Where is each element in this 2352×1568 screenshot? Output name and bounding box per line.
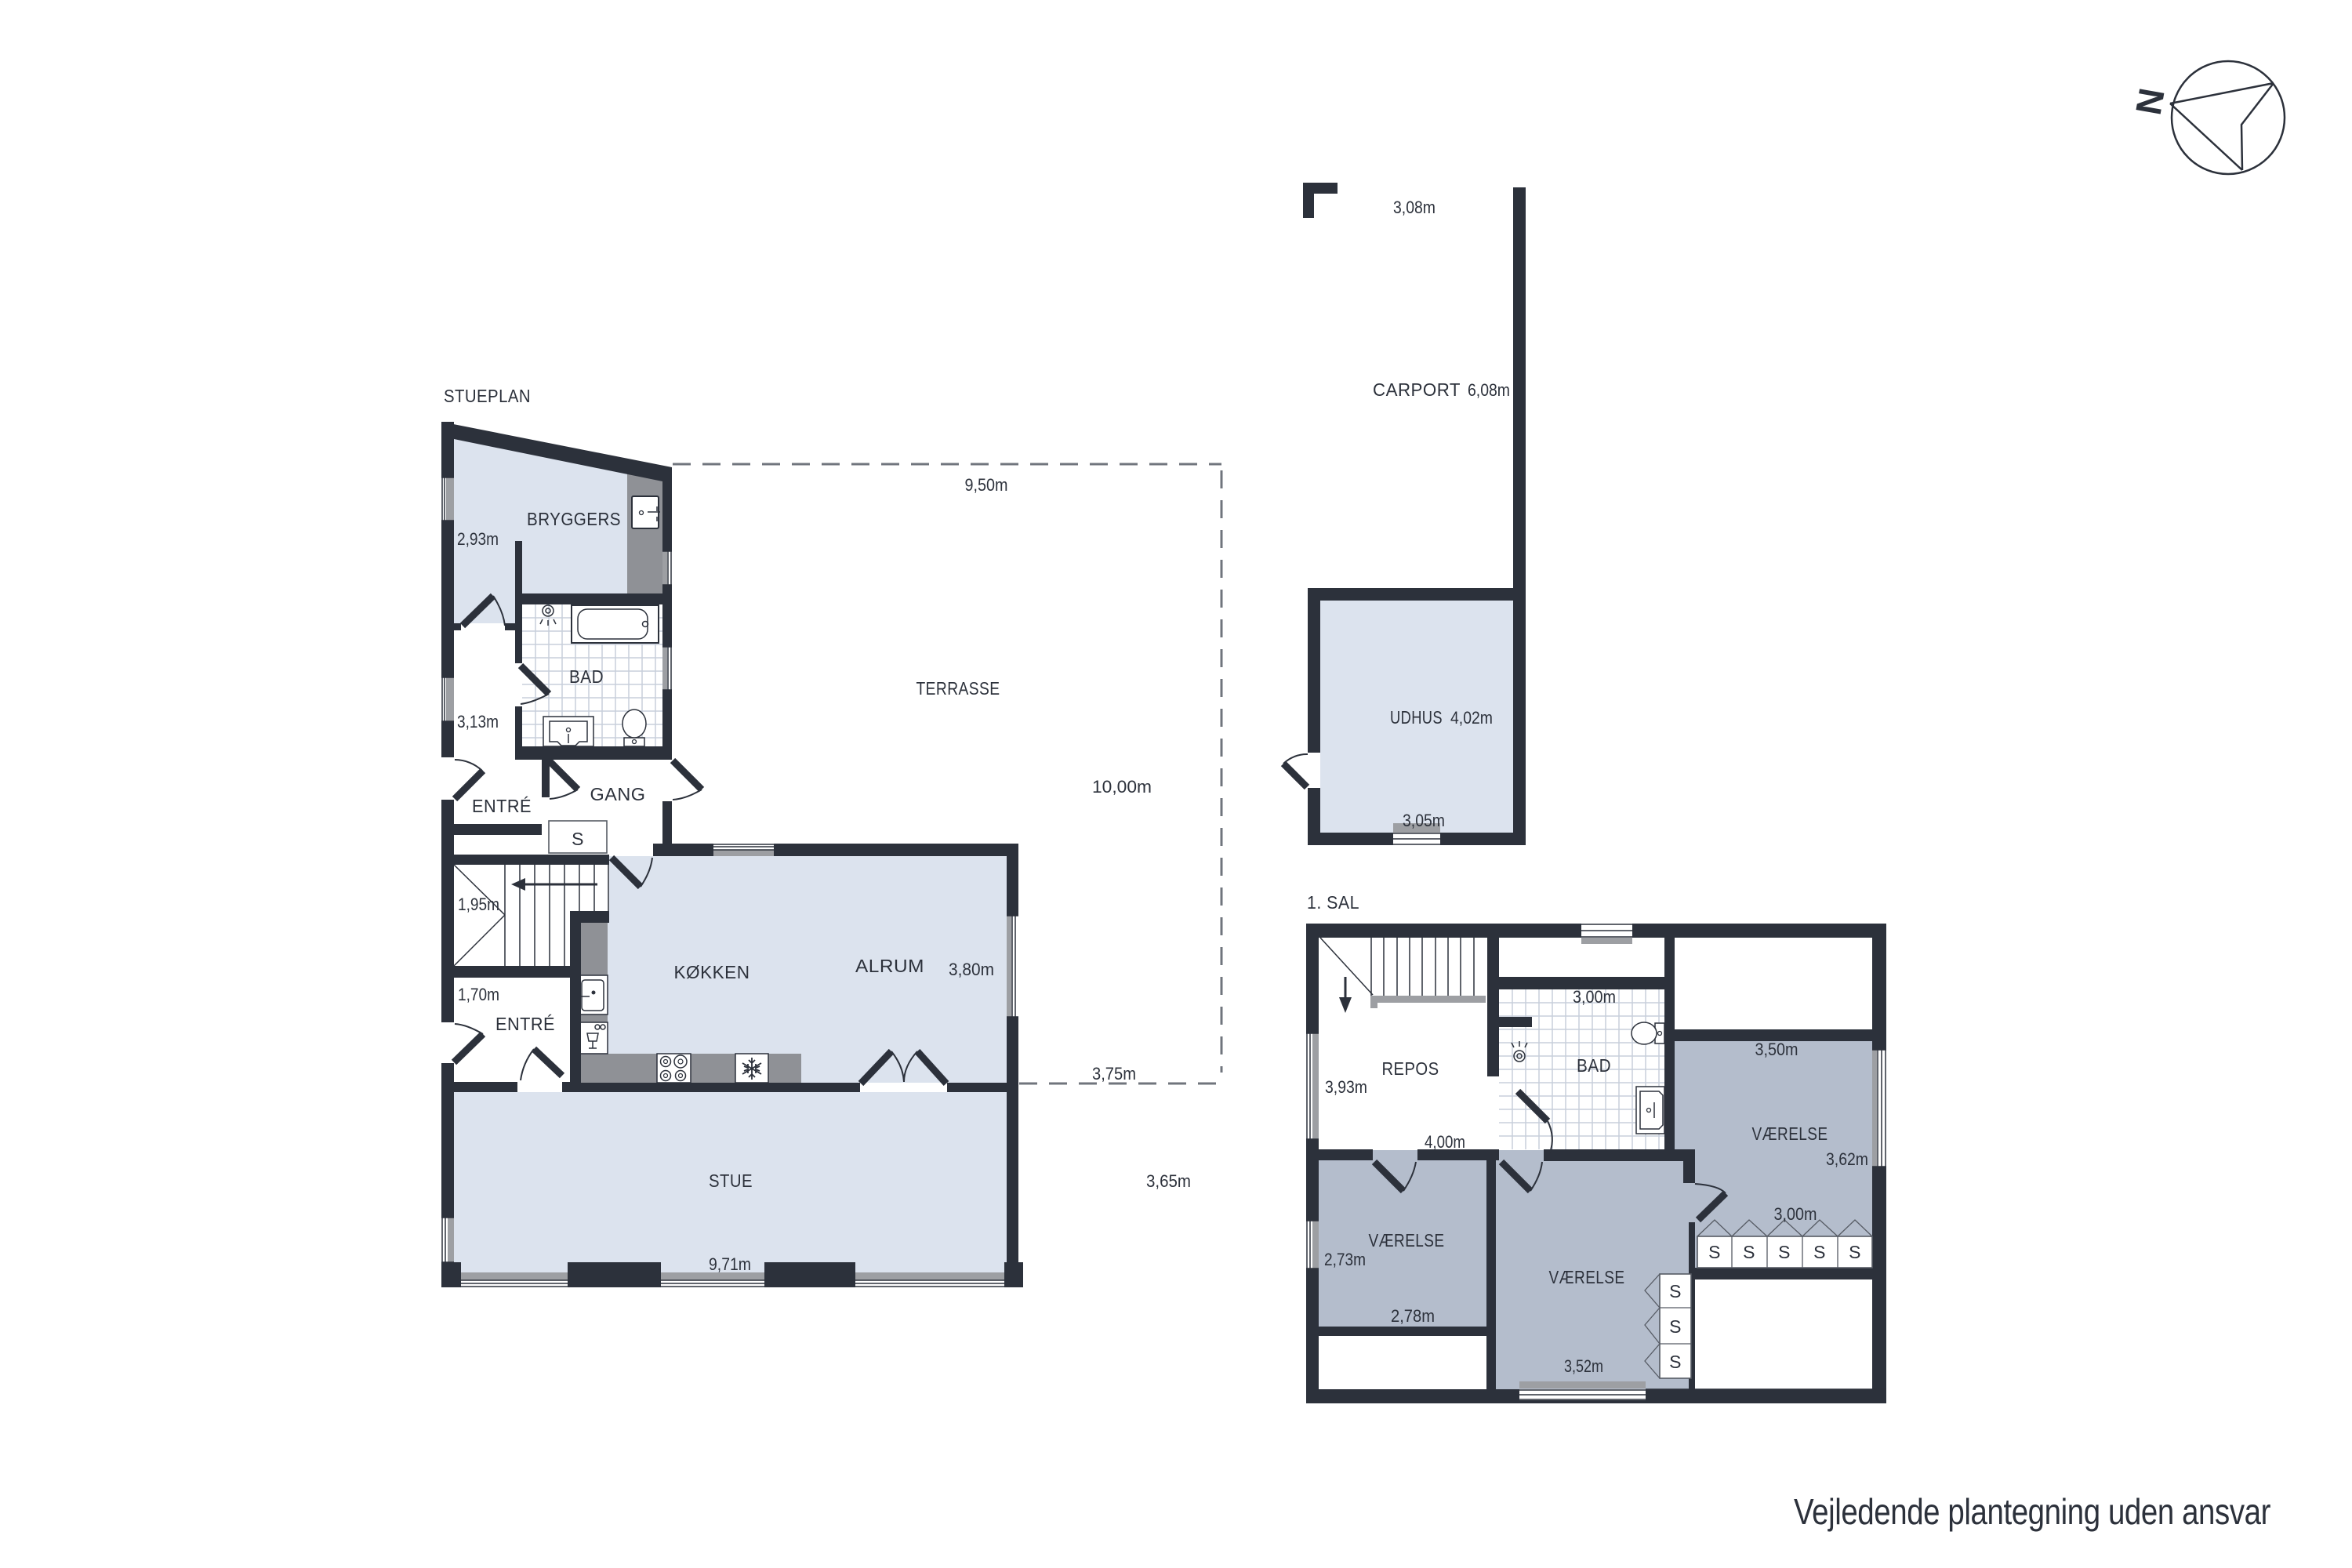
- svg-text:3,00m: 3,00m: [1774, 1204, 1817, 1224]
- svg-text:UDHUS: UDHUS: [1390, 707, 1443, 728]
- svg-text:S: S: [1669, 1352, 1682, 1372]
- svg-text:STUE: STUE: [709, 1171, 753, 1191]
- svg-text:1,95m: 1,95m: [458, 895, 499, 914]
- svg-text:TERRASSE: TERRASSE: [916, 678, 1000, 699]
- svg-text:S: S: [1669, 1316, 1682, 1337]
- svg-text:9,50m: 9,50m: [965, 475, 1008, 495]
- svg-text:CARPORT: CARPORT: [1373, 379, 1461, 400]
- svg-text:9,71m: 9,71m: [709, 1254, 751, 1274]
- svg-text:VÆRELSE: VÆRELSE: [1752, 1123, 1828, 1144]
- svg-text:ENTRÉ: ENTRÉ: [472, 796, 532, 816]
- svg-text:Vejledende plantegning uden an: Vejledende plantegning uden ansvar: [1794, 1491, 2270, 1532]
- svg-text:ALRUM: ALRUM: [855, 956, 924, 976]
- svg-text:VÆRELSE: VÆRELSE: [1549, 1267, 1625, 1287]
- svg-text:S: S: [1813, 1242, 1826, 1262]
- svg-text:2,93m: 2,93m: [457, 529, 499, 549]
- svg-text:3,13m: 3,13m: [457, 712, 499, 731]
- svg-text:1. SAL: 1. SAL: [1307, 892, 1359, 913]
- svg-text:4,02m: 4,02m: [1450, 708, 1493, 728]
- svg-text:10,00m: 10,00m: [1092, 777, 1152, 797]
- svg-text:3,93m: 3,93m: [1325, 1077, 1367, 1097]
- svg-text:S: S: [572, 829, 584, 849]
- svg-text:GANG: GANG: [590, 784, 646, 804]
- svg-text:3,05m: 3,05m: [1403, 811, 1445, 830]
- svg-text:3,52m: 3,52m: [1564, 1356, 1603, 1376]
- svg-text:BAD: BAD: [569, 666, 604, 687]
- svg-text:3,80m: 3,80m: [949, 960, 994, 979]
- svg-text:2,78m: 2,78m: [1391, 1306, 1435, 1326]
- svg-text:ENTRÉ: ENTRÉ: [495, 1014, 555, 1034]
- svg-text:S: S: [1708, 1242, 1721, 1262]
- svg-text:3,00m: 3,00m: [1573, 987, 1616, 1007]
- svg-text:S: S: [1849, 1242, 1861, 1262]
- svg-text:3,08m: 3,08m: [1393, 198, 1436, 217]
- svg-text:S: S: [1743, 1242, 1755, 1262]
- svg-text:BRYGGERS: BRYGGERS: [527, 509, 621, 529]
- svg-text:1,70m: 1,70m: [458, 985, 499, 1004]
- svg-text:3,62m: 3,62m: [1826, 1149, 1868, 1169]
- svg-text:3,75m: 3,75m: [1092, 1064, 1136, 1083]
- svg-text:S: S: [1669, 1281, 1682, 1301]
- svg-text:VÆRELSE: VÆRELSE: [1369, 1230, 1445, 1250]
- svg-text:S: S: [1778, 1242, 1791, 1262]
- svg-text:4,00m: 4,00m: [1425, 1132, 1465, 1152]
- svg-text:3,65m: 3,65m: [1146, 1171, 1191, 1191]
- svg-text:6,08m: 6,08m: [1468, 380, 1510, 400]
- svg-text:2,73m: 2,73m: [1324, 1250, 1366, 1269]
- svg-text:3,50m: 3,50m: [1755, 1040, 1798, 1059]
- svg-text:REPOS: REPOS: [1382, 1058, 1439, 1079]
- svg-text:KØKKEN: KØKKEN: [674, 962, 750, 982]
- svg-text:BAD: BAD: [1577, 1055, 1611, 1076]
- svg-text:STUEPLAN: STUEPLAN: [444, 386, 531, 406]
